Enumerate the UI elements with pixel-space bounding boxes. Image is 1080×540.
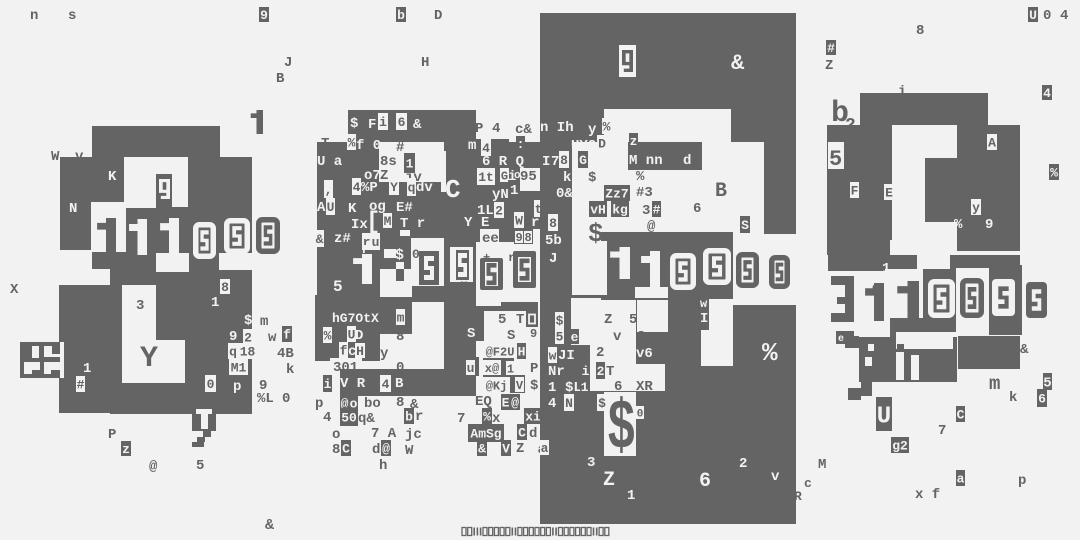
svg-text:D: D: [434, 8, 442, 24]
svg-text:8: 8: [221, 280, 229, 295]
svg-text:9: 9: [229, 329, 237, 345]
svg-text:Z: Z: [603, 469, 615, 492]
svg-text:k: k: [1009, 390, 1017, 406]
svg-text:9: 9: [530, 327, 537, 341]
svg-text:X: X: [10, 282, 19, 298]
svg-text:E: E: [885, 186, 893, 201]
svg-text:U: U: [1029, 8, 1037, 23]
svg-text:5: 5: [333, 278, 343, 296]
svg-text:Z: Z: [825, 58, 833, 74]
svg-text:z#: z#: [334, 231, 351, 247]
svg-text:F: F: [851, 184, 859, 199]
svg-text:4: 4: [1060, 8, 1068, 24]
svg-text:F: F: [368, 117, 376, 133]
svg-text:4: 4: [353, 180, 361, 195]
svg-text:C: C: [957, 408, 965, 423]
svg-text:x f: x f: [915, 487, 940, 503]
svg-text:b: b: [405, 410, 413, 425]
svg-text:N: N: [69, 201, 77, 217]
svg-text:P: P: [475, 121, 483, 137]
svg-text:1: 1: [211, 295, 219, 311]
svg-text:H: H: [421, 55, 429, 71]
svg-text:U a: U a: [317, 154, 343, 170]
svg-text:e: e: [838, 334, 844, 345]
svg-text:N: N: [565, 396, 573, 411]
svg-text:50: 50: [341, 411, 357, 426]
svg-text:m: m: [468, 138, 476, 154]
svg-text:e: e: [571, 330, 579, 345]
svg-text:m: m: [260, 314, 268, 330]
svg-text:7: 7: [938, 423, 946, 439]
svg-text:%: %: [636, 169, 645, 185]
svg-text:5: 5: [556, 330, 564, 345]
svg-text:$: $: [607, 389, 636, 468]
svg-text:%: %: [603, 120, 611, 135]
svg-text:0: 0: [412, 247, 420, 262]
svg-text:k: k: [286, 362, 294, 378]
svg-text:$: $: [395, 247, 404, 264]
svg-text:y: y: [972, 201, 980, 216]
svg-text:%: %: [348, 136, 356, 151]
svg-text:7: 7: [457, 411, 465, 427]
svg-text:dv: dv: [416, 180, 433, 196]
svg-text:%: %: [1050, 166, 1058, 181]
svg-text:$L: $L: [565, 380, 582, 396]
svg-text:p: p: [233, 379, 241, 395]
svg-text:8: 8: [637, 363, 645, 379]
svg-text:&: &: [316, 232, 324, 247]
svg-text:P: P: [530, 361, 538, 377]
svg-text:0: 0: [207, 377, 215, 392]
svg-text:8: 8: [396, 395, 404, 411]
svg-text:J: J: [284, 55, 292, 71]
svg-text:P: P: [108, 427, 116, 443]
svg-text:0: 0: [637, 409, 644, 421]
svg-text:r: r: [415, 409, 423, 425]
svg-text:i: i: [582, 364, 590, 379]
svg-text:5: 5: [498, 312, 506, 328]
svg-text:d: d: [372, 442, 380, 458]
svg-text:+: +: [483, 251, 490, 265]
svg-text:7: 7: [551, 154, 559, 170]
svg-text:q: q: [229, 345, 237, 360]
svg-text:a: a: [957, 472, 965, 487]
svg-text:S: S: [467, 326, 475, 342]
svg-text:$: $: [244, 313, 252, 329]
svg-text:Z: Z: [380, 168, 388, 184]
svg-text:Y: Y: [390, 180, 398, 195]
svg-text:n: n: [460, 277, 470, 295]
svg-text:@: @: [382, 442, 390, 457]
svg-text:XR: XR: [636, 379, 653, 395]
svg-text:b: b: [397, 8, 405, 23]
svg-text:q: q: [408, 181, 416, 196]
svg-text:Z: Z: [516, 441, 524, 457]
svg-text:z: z: [122, 442, 130, 457]
svg-text:d: d: [683, 153, 691, 169]
svg-text:$: $: [588, 219, 604, 249]
svg-text:V R: V R: [340, 376, 366, 392]
svg-text:I: I: [542, 154, 550, 170]
svg-text:g2: g2: [892, 439, 908, 454]
svg-text:s: s: [68, 8, 76, 24]
svg-text:0: 0: [396, 360, 404, 376]
svg-text:$: $: [598, 396, 606, 411]
svg-text:vH: vH: [590, 203, 606, 218]
svg-text:o: o: [332, 427, 340, 443]
svg-text:G: G: [579, 153, 587, 168]
svg-text:W: W: [405, 443, 414, 459]
svg-text:y: y: [380, 346, 389, 362]
svg-text:JI: JI: [558, 348, 575, 364]
svg-text:T: T: [516, 312, 524, 328]
svg-text:%: %: [324, 329, 332, 344]
svg-text:6: 6: [1038, 392, 1046, 407]
svg-text:V: V: [516, 379, 524, 393]
svg-text:@Kj: @Kj: [486, 379, 508, 393]
svg-text:$: $: [588, 170, 596, 186]
svg-text:A: A: [988, 136, 996, 151]
svg-text:&: &: [413, 117, 422, 133]
svg-text:4: 4: [1043, 86, 1051, 101]
svg-text:8: 8: [396, 329, 404, 345]
svg-text:3: 3: [136, 298, 144, 314]
svg-text:E: E: [502, 396, 510, 411]
svg-text:Y: Y: [140, 342, 158, 376]
svg-text:@: @: [511, 396, 519, 411]
svg-text:m: m: [397, 311, 405, 326]
svg-text:8: 8: [332, 442, 340, 458]
svg-text:&: &: [731, 51, 745, 76]
svg-text:1: 1: [510, 183, 518, 199]
svg-text:xi: xi: [525, 410, 541, 425]
svg-text:h: h: [379, 458, 387, 474]
svg-text:9: 9: [260, 8, 268, 23]
svg-text:W: W: [515, 214, 523, 229]
svg-text:%: %: [954, 217, 963, 233]
svg-text:1: 1: [581, 380, 589, 395]
svg-text:&: &: [478, 442, 486, 457]
svg-text:0: 0: [1043, 8, 1051, 24]
svg-text:W: W: [51, 149, 60, 165]
svg-text:Zz7: Zz7: [605, 187, 628, 202]
svg-text:F: F: [362, 243, 369, 257]
svg-text:M: M: [384, 214, 392, 229]
svg-text:f: f: [283, 328, 291, 343]
svg-text:#: #: [653, 203, 661, 218]
svg-text:C: C: [342, 442, 350, 457]
svg-text:r: r: [508, 251, 515, 265]
svg-text:AmSg: AmSg: [470, 427, 501, 442]
svg-text:0&: 0&: [556, 186, 573, 202]
svg-text:T: T: [606, 364, 614, 380]
svg-text:8: 8: [549, 216, 557, 231]
svg-text:#: #: [396, 140, 404, 156]
svg-text:M: M: [818, 457, 826, 473]
svg-text:n: n: [30, 8, 38, 24]
svg-text:$: $: [556, 314, 564, 329]
svg-text:%: %: [483, 410, 491, 425]
svg-text:hG7OtX: hG7OtX: [332, 311, 379, 326]
svg-text:6: 6: [693, 201, 701, 217]
svg-text:1: 1: [627, 488, 635, 504]
svg-text:y: y: [588, 122, 597, 138]
svg-text:w: w: [268, 330, 277, 346]
svg-text:D: D: [355, 328, 363, 344]
svg-text:8: 8: [637, 329, 645, 345]
svg-text:3: 3: [587, 455, 595, 471]
svg-text:Z: Z: [604, 312, 612, 328]
svg-text:J: J: [549, 251, 557, 267]
svg-text:bo: bo: [364, 396, 381, 412]
svg-text:M nn: M nn: [629, 153, 663, 169]
svg-text:i: i: [379, 115, 387, 130]
svg-text:0: 0: [282, 391, 290, 407]
svg-text:v: v: [613, 329, 622, 345]
svg-text:2: 2: [845, 116, 856, 136]
svg-text:S: S: [741, 218, 749, 233]
svg-text:kg: kg: [612, 203, 628, 218]
svg-text:v6: v6: [636, 346, 653, 362]
svg-text:D: D: [598, 137, 606, 152]
svg-text:4: 4: [548, 396, 556, 412]
svg-text:ee: ee: [482, 231, 499, 247]
svg-text:r: r: [531, 215, 539, 231]
svg-text:v: v: [771, 469, 780, 485]
svg-text:9: 9: [516, 231, 523, 245]
svg-text:i: i: [324, 377, 332, 392]
svg-text:V: V: [502, 442, 510, 457]
svg-text:T: T: [321, 136, 329, 152]
svg-text:v: v: [75, 149, 84, 165]
svg-text:$: $: [350, 116, 358, 132]
svg-text::: :: [517, 137, 525, 152]
svg-text:U: U: [327, 200, 335, 215]
svg-text:E: E: [481, 215, 489, 231]
svg-text:f 0: f 0: [356, 138, 381, 154]
svg-text:n Ih: n Ih: [540, 120, 574, 136]
svg-text:B: B: [715, 180, 727, 203]
svg-text:1t: 1t: [478, 170, 494, 185]
svg-text:2: 2: [739, 456, 747, 472]
svg-text:H: H: [356, 344, 364, 359]
svg-text:Y: Y: [464, 215, 473, 231]
svg-text:EQ: EQ: [475, 394, 492, 410]
svg-text:6: 6: [699, 470, 711, 493]
svg-text:jc: jc: [405, 427, 422, 443]
svg-text:8: 8: [916, 23, 924, 39]
svg-text:yN: yN: [492, 187, 509, 203]
svg-text:$: $: [530, 378, 538, 394]
svg-text:x@: x@: [485, 362, 499, 376]
svg-text:k: k: [563, 170, 571, 186]
svg-text:#3: #3: [636, 185, 653, 201]
svg-text:E#: E#: [396, 200, 413, 216]
svg-text:Nr: Nr: [548, 364, 565, 380]
svg-text:#: #: [77, 378, 85, 393]
svg-text:&: &: [265, 517, 274, 534]
svg-text:7 A: 7 A: [371, 426, 397, 442]
svg-text:A: A: [317, 200, 326, 216]
svg-text:c&: c&: [515, 122, 532, 138]
svg-text:@F2U: @F2U: [486, 345, 515, 359]
svg-text:4B: 4B: [277, 346, 294, 362]
svg-text:z: z: [630, 134, 638, 149]
svg-text:1: 1: [548, 380, 556, 396]
svg-text:w: w: [700, 297, 708, 311]
svg-text:4: 4: [323, 410, 331, 426]
svg-text:4: 4: [382, 377, 390, 392]
svg-text:I: I: [700, 311, 708, 327]
svg-text:2: 2: [596, 345, 604, 361]
svg-text:6 R Q: 6 R Q: [482, 154, 524, 170]
svg-text:18: 18: [240, 345, 256, 360]
svg-text:5: 5: [196, 458, 204, 474]
svg-text:1: 1: [507, 362, 514, 376]
svg-text:T r: T r: [400, 216, 425, 232]
svg-text:95: 95: [520, 169, 537, 185]
svg-text:301: 301: [333, 360, 358, 376]
svg-text:d: d: [529, 426, 537, 442]
svg-text:c: c: [804, 476, 812, 491]
svg-text:2: 2: [597, 364, 605, 379]
svg-text:%P: %P: [361, 180, 378, 196]
svg-text:[: [: [366, 209, 380, 236]
svg-text:,: ,: [325, 183, 333, 198]
svg-text:5: 5: [629, 312, 637, 328]
svg-text:a: a: [541, 441, 549, 456]
svg-text:B: B: [395, 376, 404, 392]
svg-text:&: &: [1020, 342, 1029, 358]
svg-text:K: K: [108, 169, 117, 185]
svg-text:5b: 5b: [545, 233, 562, 249]
svg-text:%: %: [762, 338, 778, 368]
svg-text:1: 1: [83, 361, 91, 377]
svg-text:2: 2: [495, 204, 503, 219]
svg-text:C: C: [445, 175, 461, 205]
svg-text:f: f: [340, 344, 348, 359]
svg-text:K: K: [348, 201, 357, 217]
svg-text:u: u: [467, 361, 475, 376]
svg-text:#: #: [827, 41, 835, 56]
svg-text:3: 3: [642, 203, 650, 219]
svg-text:6: 6: [398, 115, 406, 130]
svg-text:5: 5: [829, 147, 842, 172]
svg-text:p: p: [1018, 473, 1026, 489]
svg-text:8: 8: [560, 153, 568, 168]
svg-text:8: 8: [525, 231, 532, 245]
svg-text:q&: q&: [358, 411, 375, 427]
svg-text:9: 9: [985, 217, 993, 233]
svg-text:@: @: [149, 459, 158, 475]
svg-text:B: B: [276, 71, 285, 87]
svg-text:w: w: [549, 349, 557, 364]
svg-text:C: C: [518, 426, 526, 441]
svg-text:@: @: [647, 219, 656, 235]
svg-text:H: H: [518, 345, 526, 360]
svg-text:u: u: [372, 235, 380, 250]
svg-text:R: R: [794, 489, 802, 504]
svg-text:S: S: [507, 328, 515, 344]
svg-text:M1: M1: [231, 361, 247, 376]
svg-text:%L: %L: [257, 391, 274, 407]
svg-text:m: m: [989, 373, 1000, 395]
svg-text:U: U: [877, 404, 891, 431]
svg-text:4: 4: [492, 121, 500, 137]
